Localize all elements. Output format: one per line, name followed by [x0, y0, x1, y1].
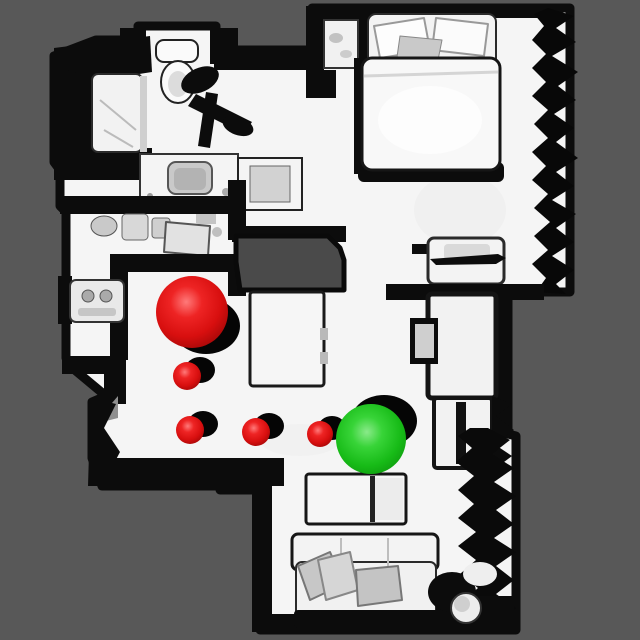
- shelf-unit-upper: [428, 294, 496, 398]
- waypoint-red-large-sphere[interactable]: [156, 276, 228, 348]
- waypoint-red-small-2-sphere[interactable]: [176, 416, 204, 444]
- ottoman-shade: [454, 596, 470, 612]
- waypoint-red-small-4-sphere[interactable]: [307, 421, 333, 447]
- wall-living-left: [252, 486, 272, 632]
- floor-shading-bedroom: [414, 174, 506, 246]
- kitchen-box: [164, 222, 210, 256]
- kitchen-item-3: [212, 227, 222, 237]
- toilet-tank: [156, 40, 198, 62]
- shelf-protrusion-front: [415, 324, 434, 358]
- sink-basin-inner: [174, 168, 206, 190]
- coffee-table-panel: [375, 478, 403, 520]
- kitchen-sink-pot: [91, 216, 117, 236]
- couch-pillow-3: [356, 566, 402, 606]
- couch-bottom-shadow: [294, 610, 442, 628]
- coffee-table-divider: [370, 476, 375, 522]
- washer-knob-2: [100, 290, 112, 302]
- wall-hall-top: [214, 46, 320, 70]
- dining-table-tab-2: [320, 352, 328, 364]
- scene-viewport[interactable]: [0, 0, 640, 640]
- washer-knob-1: [82, 290, 94, 302]
- scan-hole: [236, 236, 344, 290]
- nightstand-item-2: [340, 50, 352, 58]
- wall-kitchen-step-down: [104, 358, 126, 404]
- waypoint-green-sphere[interactable]: [336, 404, 406, 474]
- dining-table-tab-1: [320, 328, 328, 340]
- wall-nook-bottom: [306, 70, 336, 98]
- nightstand: [324, 20, 358, 68]
- wall-corridor-bottom: [96, 458, 284, 486]
- waypoint-red-small-1-sphere[interactable]: [173, 362, 201, 390]
- nightstand-item-1: [329, 33, 343, 43]
- bed-highlight: [378, 86, 482, 154]
- kitchen-item-1: [122, 214, 148, 240]
- kitchen-item-4: [196, 214, 216, 224]
- washer-slot: [78, 308, 116, 316]
- scene-canvas[interactable]: [0, 0, 640, 640]
- dining-table: [250, 292, 324, 386]
- waypoint-red-small-3-sphere[interactable]: [242, 418, 270, 446]
- apartment-geometry: [54, 4, 578, 634]
- couch-pillow-2: [318, 552, 358, 600]
- wall-bath-kitchen-divider: [60, 196, 242, 214]
- wall-toilet-left: [120, 28, 146, 60]
- shower-divider: [140, 76, 147, 152]
- wall-nook-top: [324, 6, 374, 20]
- hall-cabinet-front: [250, 166, 290, 202]
- floor-patch-right: [463, 562, 497, 586]
